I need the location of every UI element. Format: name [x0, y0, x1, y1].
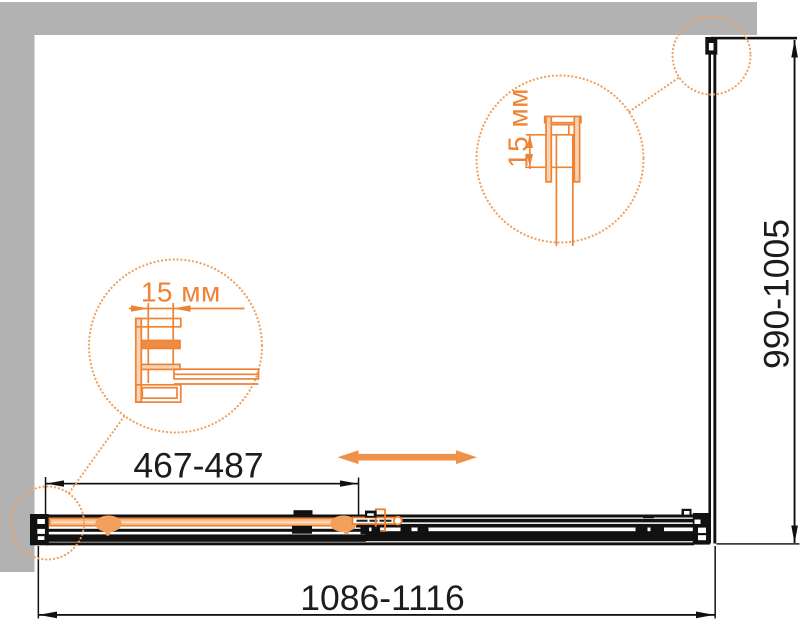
svg-text:467-487: 467-487 [133, 446, 263, 486]
svg-text:15 мм: 15 мм [141, 277, 221, 308]
svg-text:990-1005: 990-1005 [757, 219, 797, 369]
svg-text:15 мм: 15 мм [503, 88, 534, 168]
svg-text:1086-1116: 1086-1116 [300, 578, 465, 618]
